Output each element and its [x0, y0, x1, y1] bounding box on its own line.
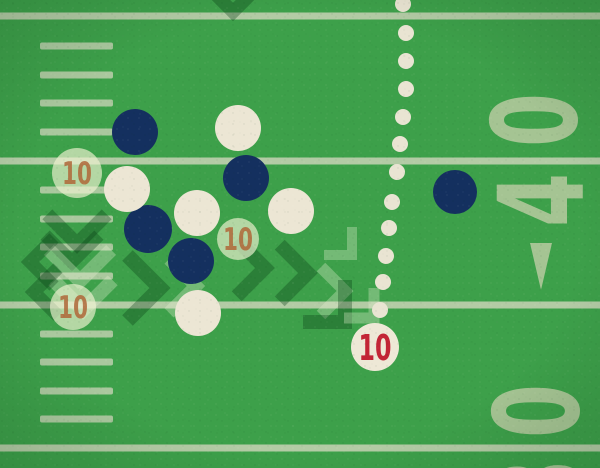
vignette-overlay	[0, 0, 600, 468]
field-canvas: 040310101010	[0, 0, 600, 468]
football-field-poster: 040310101010	[0, 0, 600, 468]
